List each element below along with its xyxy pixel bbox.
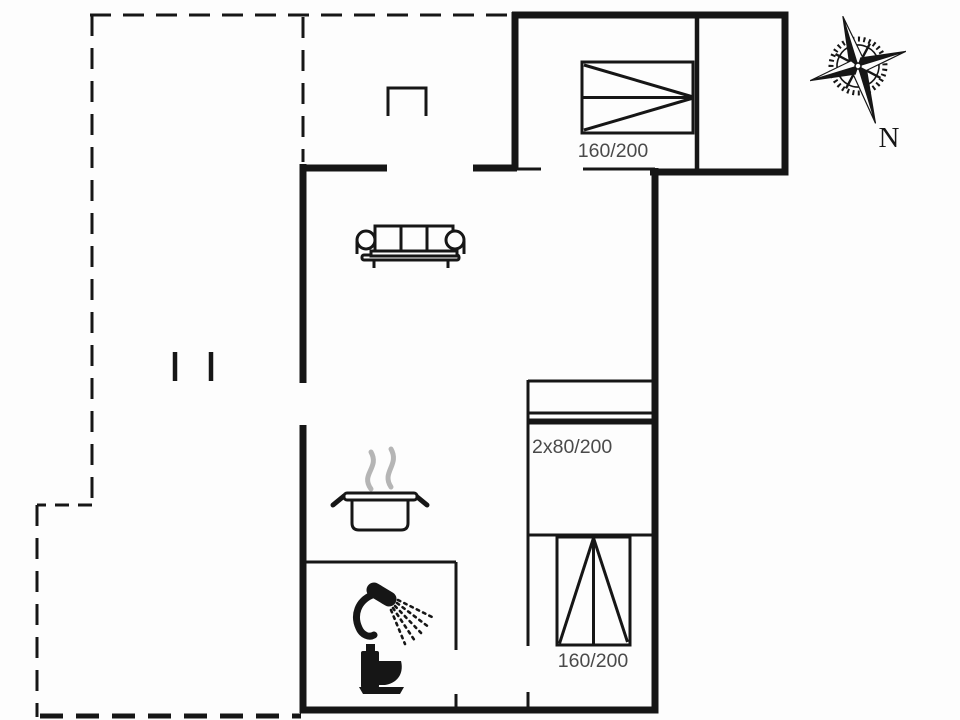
sofa-armrest-right xyxy=(446,231,464,249)
shower-icon xyxy=(357,590,434,644)
compass-hub xyxy=(854,62,861,69)
wall-top-right-block xyxy=(512,15,785,172)
bed-size-label: 160/200 xyxy=(578,140,649,162)
shower-arm xyxy=(357,595,374,636)
exterior-walls xyxy=(300,12,785,713)
pot-handle-left xyxy=(333,496,344,505)
compass-rose: N xyxy=(795,2,923,154)
sofa-armrest-left xyxy=(357,231,375,249)
toilet-bowl xyxy=(379,661,402,685)
terrace-outline xyxy=(37,15,513,717)
bed-duvet-left xyxy=(560,538,594,644)
floor-plan-page: 160/200 2x80/200 160/200 xyxy=(0,0,960,720)
steam-wisp-right xyxy=(388,449,393,487)
shower-head xyxy=(374,590,389,599)
cooking-pot-icon xyxy=(333,449,427,530)
sofa-icon xyxy=(357,226,464,268)
sofa-cushions xyxy=(375,226,453,251)
pot-rim xyxy=(344,493,417,500)
toilet-base xyxy=(359,687,404,694)
double-bed-bottom: 160/200 xyxy=(557,537,630,672)
bed-duvet-right xyxy=(594,538,628,642)
compass-star xyxy=(795,2,923,138)
toilet-icon xyxy=(359,644,404,694)
double-bed-top: 160/200 xyxy=(578,62,693,162)
bed-size-label: 160/200 xyxy=(558,650,629,672)
bed-duvet-bottom xyxy=(584,99,692,131)
steam-wisp-left xyxy=(368,452,374,489)
bunk-bed: 2x80/200 xyxy=(528,381,653,458)
bunk-size-label: 2x80/200 xyxy=(532,436,612,458)
floor-plan-drawing: 160/200 2x80/200 160/200 xyxy=(0,0,960,720)
toilet-tank xyxy=(361,651,379,688)
pot-body xyxy=(352,500,408,530)
compass-north-label: N xyxy=(879,122,900,154)
sofa-seat-front xyxy=(371,251,457,256)
chimney-symbol xyxy=(388,88,426,116)
bed-duvet-top xyxy=(584,65,692,97)
